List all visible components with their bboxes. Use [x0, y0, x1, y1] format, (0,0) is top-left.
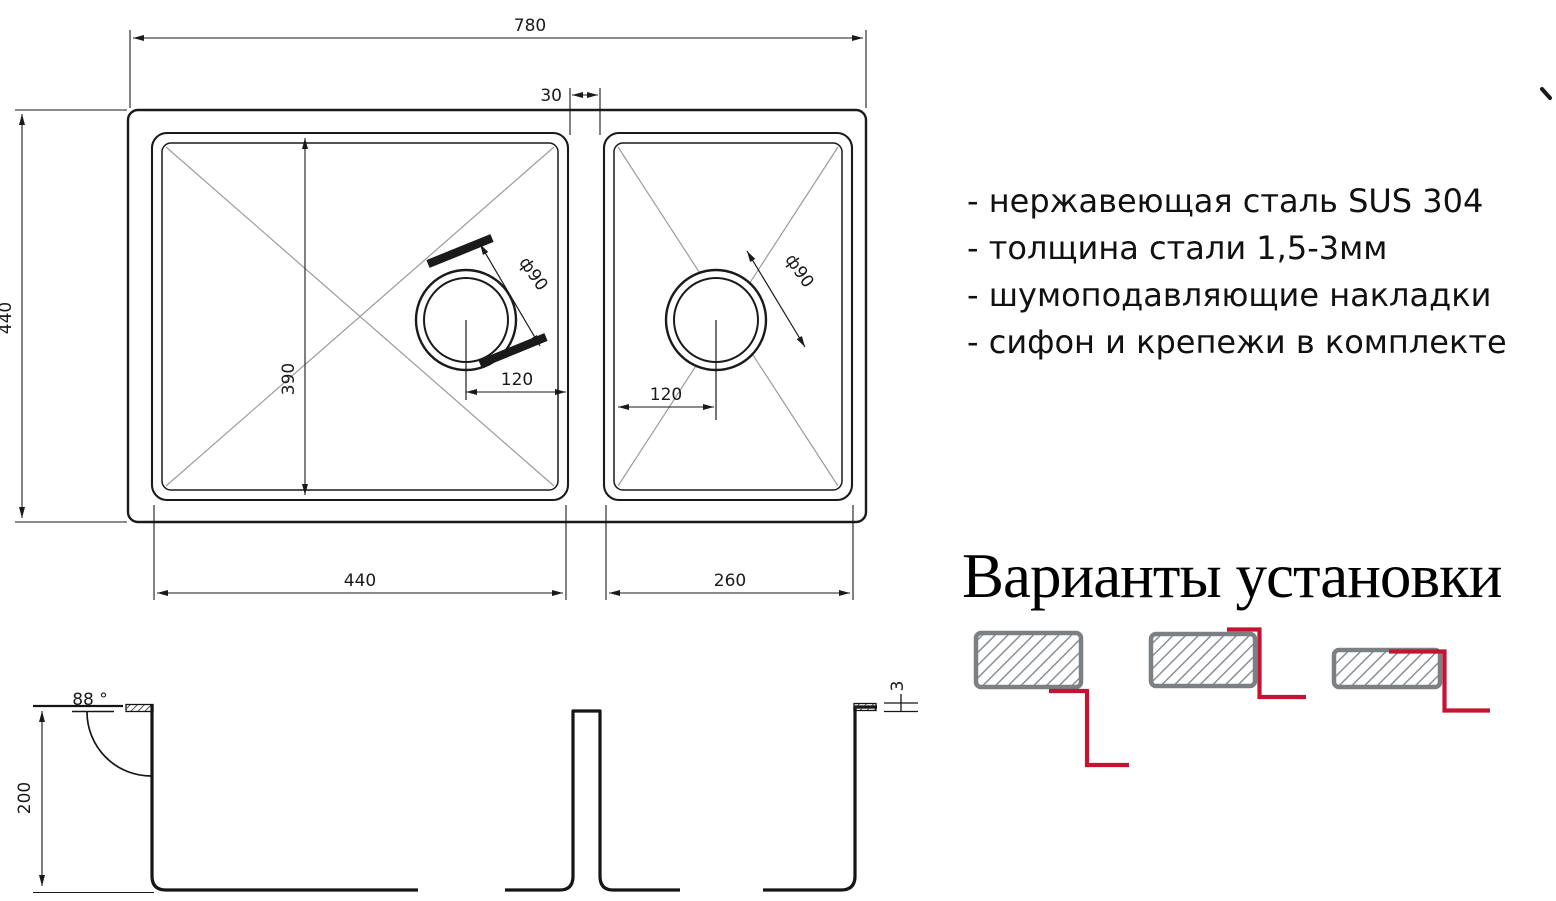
- mount-option-undermount: [976, 633, 1129, 765]
- dim-angle-label: 88 °: [72, 690, 108, 710]
- left-bowl-profile: [152, 705, 418, 890]
- mount-1-sink-edge: [1049, 691, 1129, 765]
- spec-item: - сифон и крепежи в комплекте: [967, 319, 1507, 366]
- mount-1-counter-section: [976, 633, 1081, 687]
- dim-780-label: 780: [514, 16, 546, 36]
- divider-profile: [505, 711, 680, 890]
- mount-3-counter-section: [1334, 650, 1440, 687]
- dim-120-right-label: 120: [650, 385, 682, 405]
- dim-200: 200: [15, 711, 154, 893]
- right-bowl-profile: [763, 707, 877, 890]
- dim-260-bowl-label: 260: [714, 571, 746, 591]
- right-rim-section: [854, 704, 876, 711]
- left-rim-section: [126, 705, 153, 712]
- dim-200-label: 200: [15, 782, 35, 814]
- dim-440-depth: 440: [0, 110, 127, 522]
- stray-mark: [1542, 89, 1550, 98]
- dim-30-label: 30: [540, 86, 562, 106]
- top-view: ф90 ф90 780 30: [0, 16, 866, 600]
- installation-heading: Варианты установки: [962, 540, 1502, 613]
- dim-440-depth-label: 440: [0, 302, 16, 334]
- dim-thickness-label: 3: [888, 681, 908, 692]
- dim-260-bowl: 260: [606, 505, 853, 600]
- installation-options: [976, 630, 1490, 766]
- dim-440-bowl: 440: [154, 505, 566, 600]
- dim-780: 780: [130, 16, 866, 108]
- drawing-svg: ф90 ф90 780 30: [0, 0, 1556, 901]
- dim-thickness: 3: [884, 681, 918, 712]
- mount-option-overmount: [1151, 630, 1306, 698]
- spec-item: - шумоподавляющие накладки: [967, 272, 1507, 319]
- spec-item: - нержавеющая сталь SUS 304: [967, 178, 1507, 225]
- dim-390: 390: [279, 138, 305, 495]
- dim-120-left: 120: [466, 370, 566, 392]
- dim-120-left-label: 120: [501, 370, 533, 390]
- dim-angle: 88 °: [72, 690, 151, 776]
- dim-120-right: 120: [618, 385, 714, 407]
- dim-440-bowl-label: 440: [344, 571, 376, 591]
- section-view: 200 88 ° 3: [15, 681, 918, 893]
- left-drain-diameter-label: ф90: [515, 254, 552, 295]
- sink-technical-drawing-page: ф90 ф90 780 30: [0, 0, 1556, 901]
- right-drain-diameter-label: ф90: [781, 251, 818, 292]
- mount-option-flushmount: [1334, 650, 1490, 711]
- spec-list: - нержавеющая сталь SUS 304 - толщина ст…: [967, 178, 1507, 366]
- dim-390-label: 390: [279, 363, 299, 395]
- mount-2-counter-section: [1151, 634, 1255, 686]
- spec-item: - толщина стали 1,5-3мм: [967, 225, 1507, 272]
